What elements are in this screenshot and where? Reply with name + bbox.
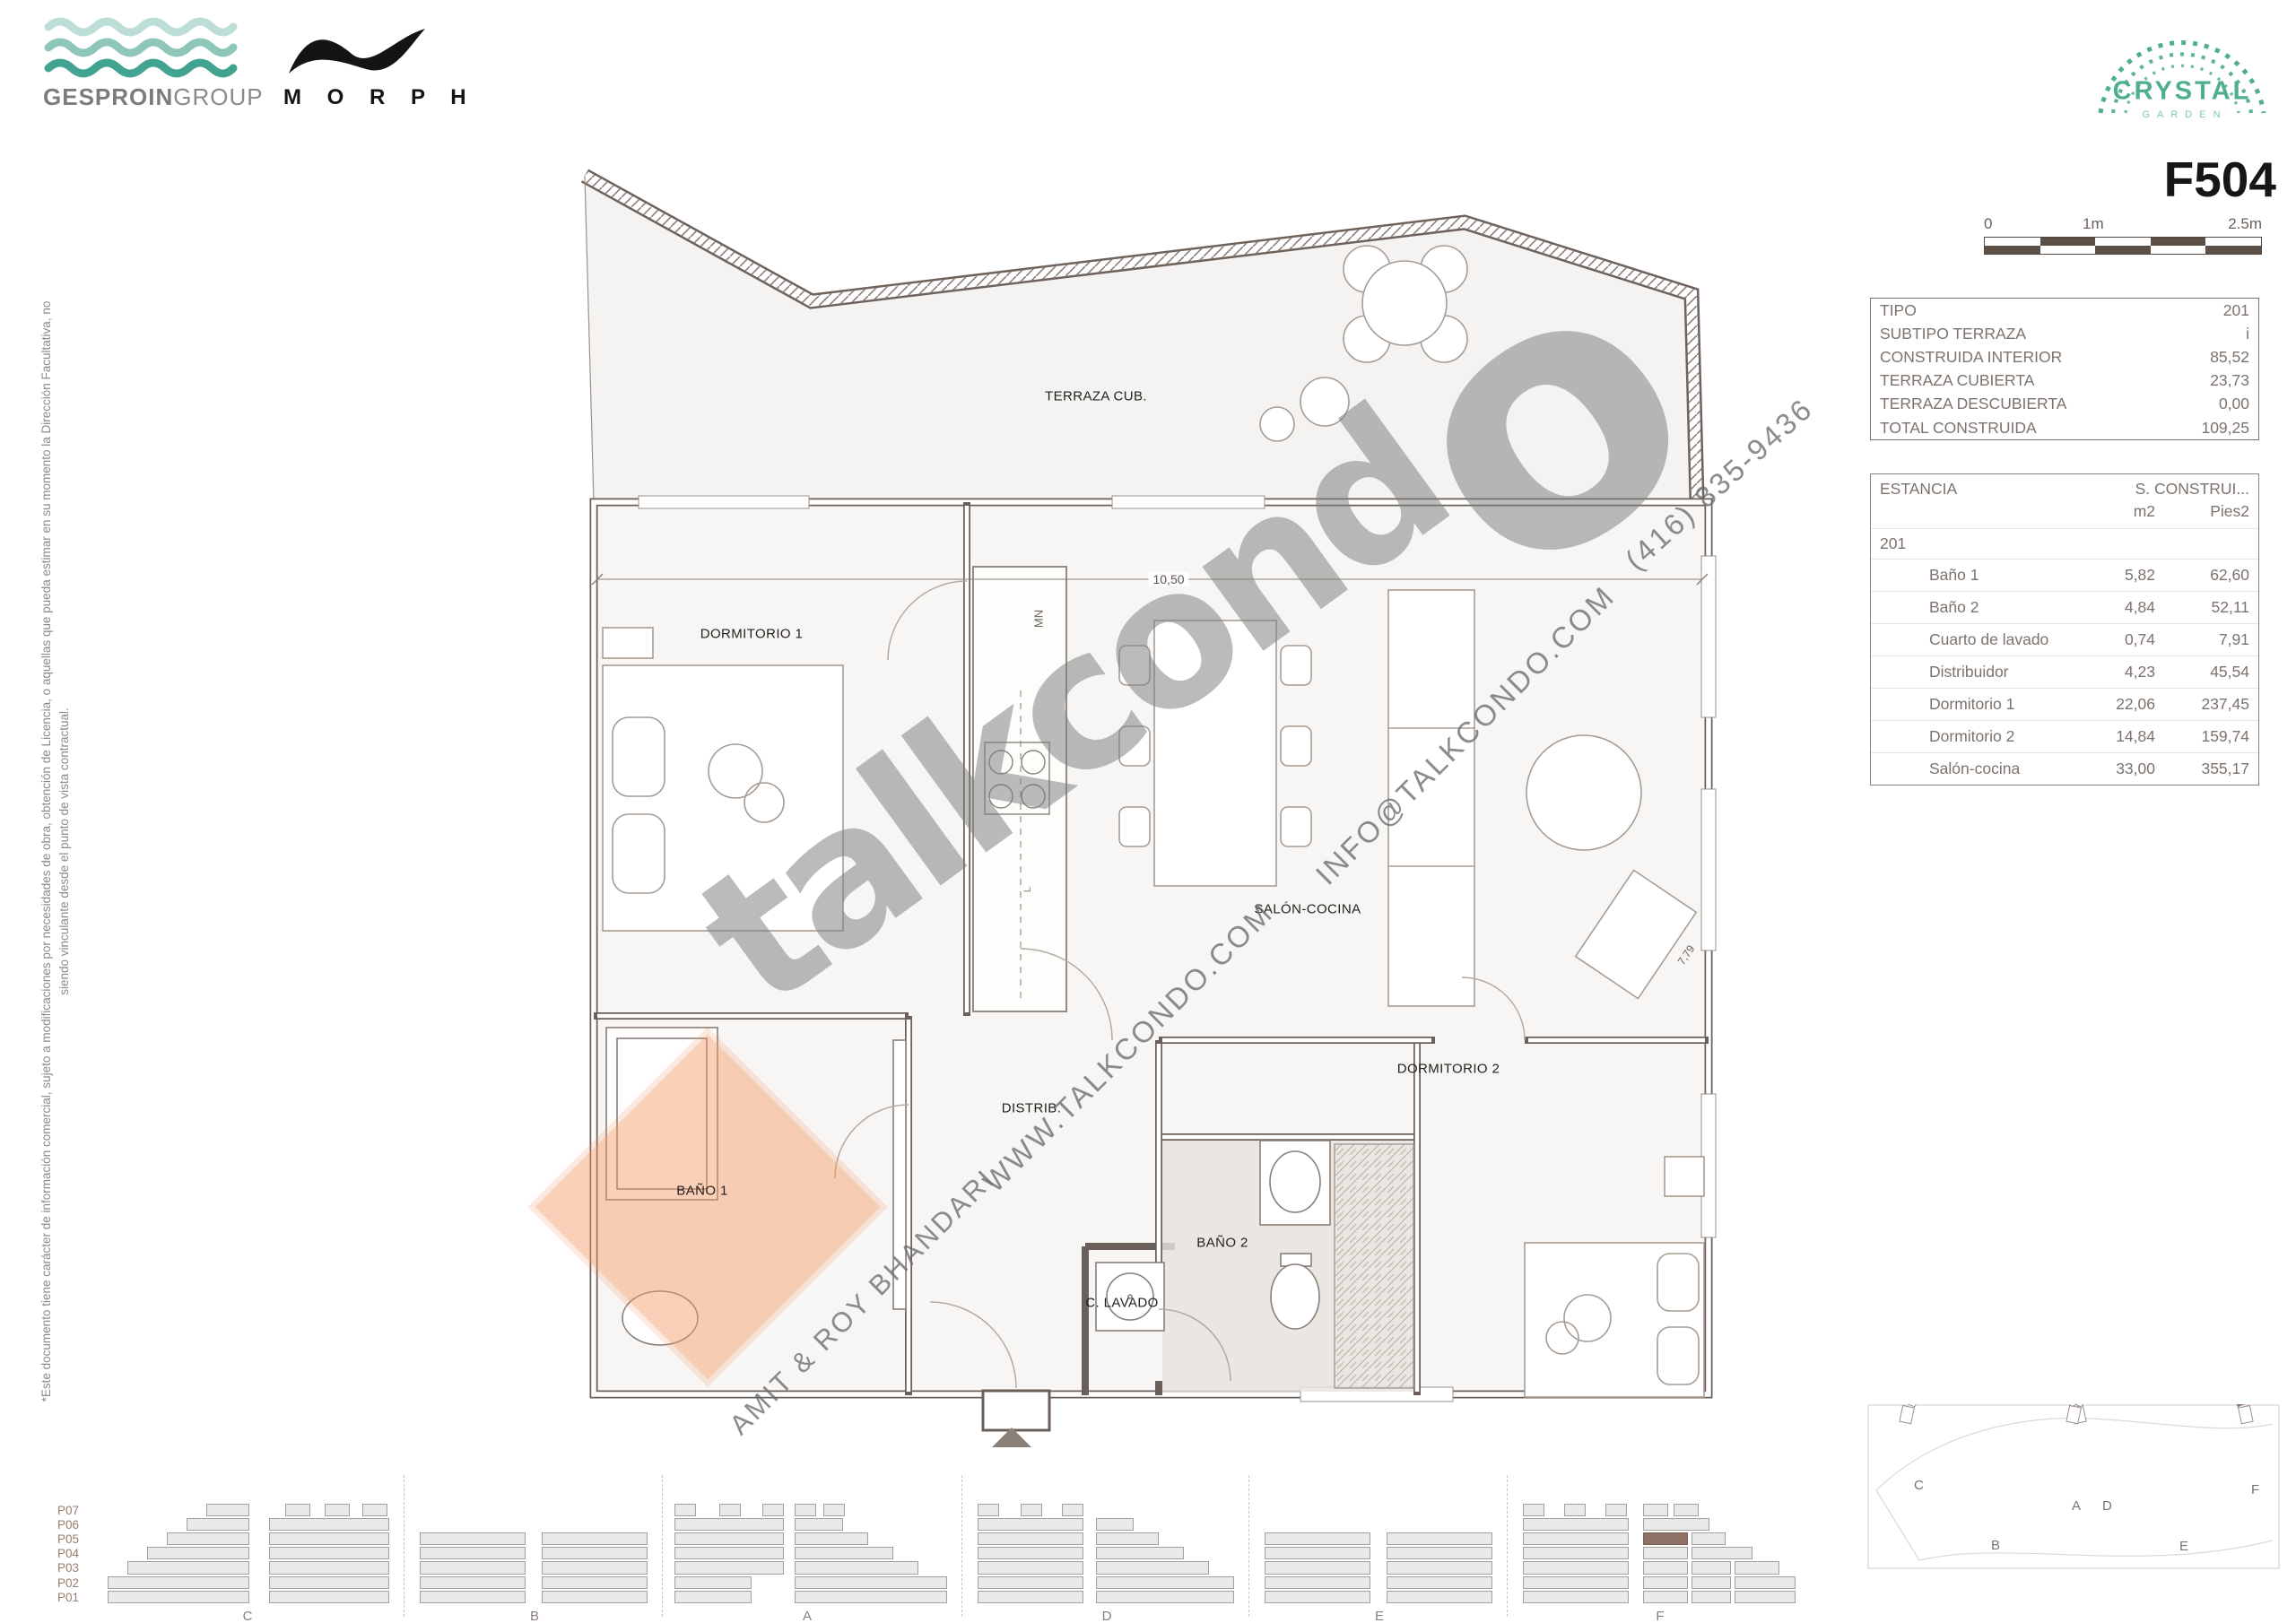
floor-level-label: P03: [57, 1561, 79, 1575]
elevation-unit: [795, 1576, 947, 1589]
elevation-unit: [269, 1591, 389, 1603]
room-area-row: Cuarto de lavado0,747,91: [1871, 623, 2258, 655]
elevation-unit: [795, 1532, 868, 1545]
room-area-row: Distribuidor4,2345,54: [1871, 655, 2258, 688]
summary-row: TERRAZA CUBIERTA23,73: [1871, 369, 2258, 393]
elevation-unit: [674, 1591, 752, 1603]
floor-level-label: P06: [57, 1518, 79, 1532]
elevation-unit-highlighted: [1643, 1532, 1688, 1545]
elevation-unit: [542, 1561, 648, 1574]
elevation-unit: [1387, 1532, 1492, 1545]
elevation-unit: [674, 1561, 784, 1574]
room-area-row: Dormitorio 214,84159,74: [1871, 720, 2258, 752]
elevation-section-label: B: [530, 1609, 539, 1623]
unit-m2: m2: [2070, 502, 2155, 521]
elevation-unit: [1605, 1504, 1627, 1516]
elevation-unit: [1735, 1591, 1796, 1603]
elevation-unit: [1265, 1576, 1370, 1589]
col-estancia: ESTANCIA: [1880, 480, 1957, 499]
elevation-unit: [1265, 1561, 1370, 1574]
floor-level-label: P05: [57, 1532, 79, 1546]
gesproin-wordmark: GESPROINGROUP: [43, 83, 264, 111]
scale-segment: [1985, 238, 2040, 246]
col-construida: S. CONSTRUI...: [2135, 480, 2249, 499]
elevation-unit: [795, 1591, 947, 1603]
elevation-unit: [420, 1576, 526, 1589]
elevation-unit: [269, 1561, 389, 1574]
elevation-unit: [674, 1576, 752, 1589]
elevation-unit: [1062, 1504, 1083, 1516]
scale-bar-labels: 0 1m 2.5m: [1984, 215, 2262, 237]
site-section-label: A: [2072, 1498, 2081, 1514]
elevation-unit: [1674, 1504, 1699, 1516]
elevation-unit: [1523, 1561, 1629, 1574]
gesproin-logo: GESPROINGROUP: [43, 14, 264, 111]
room-areas-table: ESTANCIA S. CONSTRUI... m2 Pies2 201 Bañ…: [1870, 473, 2259, 785]
scale-tick-1m: 1m: [2083, 215, 2104, 233]
gesproin-waves-icon: [43, 14, 239, 79]
summary-row: TOTAL CONSTRUIDA109,25: [1871, 416, 2258, 439]
label-salon-cocina: SALÓN-COCINA: [1255, 902, 1361, 917]
elevation-unit: [1265, 1547, 1370, 1559]
elevation-unit: [1523, 1504, 1544, 1516]
elevation-unit: [978, 1518, 1083, 1531]
elevation-unit: [1643, 1561, 1688, 1574]
elevation-unit: [1021, 1504, 1042, 1516]
morph-wave-icon: [283, 20, 436, 81]
floor-level-label: P07: [57, 1504, 79, 1517]
site-section-label: C: [1914, 1478, 1924, 1493]
wardrobe: [1335, 1144, 1413, 1388]
elevation-unit: [1096, 1518, 1134, 1531]
elevation-unit: [167, 1532, 249, 1545]
elevation-unit: [1096, 1532, 1159, 1545]
elevation-unit: [978, 1547, 1083, 1559]
elevation-unit: [1643, 1547, 1688, 1559]
dim-l: L: [1022, 887, 1033, 892]
elevation-unit: [674, 1547, 784, 1559]
elevation-unit: [795, 1504, 816, 1516]
section-divider: [1507, 1475, 1508, 1617]
elevation-unit: [674, 1504, 696, 1516]
elevation-unit: [1643, 1591, 1688, 1603]
elevation-unit: [674, 1532, 784, 1545]
scale-segment: [2205, 246, 2261, 254]
scale-tick-0: 0: [1984, 215, 1992, 233]
elevation-unit: [823, 1504, 845, 1516]
site-section-label: D: [2102, 1498, 2112, 1514]
room-areas-header: ESTANCIA S. CONSTRUI...: [1871, 474, 2258, 500]
summary-row: TIPO201: [1871, 299, 2258, 322]
label-distribuidor: DISTRIB.: [1002, 1101, 1062, 1116]
garden-wordmark: GARDEN: [2142, 109, 2227, 120]
section-divider: [662, 1475, 663, 1617]
elevation-unit: [420, 1547, 526, 1559]
elevation-unit: [978, 1576, 1083, 1589]
elevation-unit: [1387, 1591, 1492, 1603]
scale-segment: [2151, 238, 2206, 246]
floorplan-page: GESPROINGROUP M O R P H CRYSTAL GARDEN F…: [0, 0, 2296, 1623]
label-bano-2: BAÑO 2: [1196, 1236, 1248, 1251]
elevation-unit: [269, 1576, 389, 1589]
elevation-unit: [420, 1532, 526, 1545]
elevation-section-label: C: [243, 1609, 253, 1623]
site-section-label: E: [2179, 1539, 2188, 1554]
elevation-unit: [127, 1561, 249, 1574]
elevation-unit: [108, 1576, 249, 1589]
room-area-row: Salón-cocina33,00355,17: [1871, 752, 2258, 785]
elevation-unit: [1692, 1576, 1731, 1589]
elevation-unit: [420, 1591, 526, 1603]
elevation-unit: [795, 1547, 893, 1559]
floor-level-label: P04: [57, 1547, 79, 1560]
elevation-unit: [1523, 1518, 1629, 1531]
label-c-lavado: C. LAVADO: [1085, 1296, 1158, 1311]
room-area-row: Baño 15,8262,60: [1871, 559, 2258, 591]
elevation-unit: [542, 1576, 648, 1589]
elevation-section-label: D: [1102, 1609, 1112, 1623]
label-dormitorio-1: DORMITORIO 1: [700, 627, 804, 642]
elevation-unit: [1692, 1561, 1731, 1574]
site-section-label: B: [1991, 1538, 2000, 1553]
elevation-unit: [1265, 1532, 1370, 1545]
elevation-unit: [1387, 1547, 1492, 1559]
label-dormitorio-2: DORMITORIO 2: [1397, 1062, 1500, 1077]
elevation-unit: [325, 1504, 350, 1516]
elevation-unit: [719, 1504, 741, 1516]
scale-bar: 0 1m 2.5m: [1984, 215, 2262, 255]
elevation-unit: [420, 1561, 526, 1574]
elevation-unit: [206, 1504, 249, 1516]
label-terraza: TERRAZA CUB.: [1045, 389, 1147, 404]
unit-summary-table: TIPO201SUBTIPO TERRAZAiCONSTRUIDA INTERI…: [1870, 298, 2259, 440]
elevation-section-label: E: [1375, 1609, 1384, 1623]
elevation-unit: [1387, 1561, 1492, 1574]
elevation-unit: [1735, 1576, 1796, 1589]
summary-row: CONSTRUIDA INTERIOR85,52: [1871, 345, 2258, 369]
elevation-unit: [269, 1518, 389, 1531]
site-key-plan: CBADEF: [1867, 1404, 2280, 1569]
summary-row: TERRAZA DESCUBIERTA0,00: [1871, 393, 2258, 416]
elevation-unit: [187, 1518, 249, 1531]
floor-level-label: P01: [57, 1591, 79, 1604]
elevation-unit: [542, 1591, 648, 1603]
site-section-label: F: [2251, 1482, 2259, 1497]
crystal-wordmark: CRYSTAL: [2113, 77, 2252, 107]
dim-10-50: 10,50: [1148, 572, 1188, 586]
legal-disclaimer: *Este documento tiene carácter de inform…: [38, 204, 74, 1499]
elevation-unit: [1096, 1547, 1184, 1559]
elevation-unit: [978, 1561, 1083, 1574]
terrace-floor: [585, 176, 1697, 502]
elevation-unit: [674, 1518, 784, 1531]
scale-segment: [2040, 238, 2096, 246]
elevation-unit: [978, 1504, 999, 1516]
disclaimer-line-1: *Este documento tiene carácter de inform…: [38, 204, 56, 1499]
morph-logo: M O R P H: [283, 20, 476, 110]
elevation-section-label: A: [803, 1609, 812, 1623]
elevation-unit: [762, 1504, 784, 1516]
elevation-unit: [269, 1547, 389, 1559]
scale-segment: [2151, 246, 2206, 254]
entry-door: [983, 1391, 1049, 1430]
elevation-unit: [1692, 1532, 1726, 1545]
scale-segment: [2095, 246, 2151, 254]
elevation-unit: [285, 1504, 310, 1516]
bed-dorm1: [603, 628, 843, 931]
elevation-unit: [1523, 1532, 1629, 1545]
morph-wordmark: M O R P H: [283, 85, 476, 110]
kitchen: [973, 567, 1066, 1011]
scale-tick-2-5m: 2.5m: [2228, 215, 2262, 233]
elevation-unit: [1643, 1576, 1688, 1589]
elevation-unit: [542, 1532, 648, 1545]
label-bano-1: BAÑO 1: [676, 1184, 727, 1199]
unit-code: F504: [2164, 151, 2276, 208]
crystal-garden-logo: CRYSTAL GARDEN: [2086, 13, 2278, 127]
section-divider: [961, 1475, 962, 1617]
elevation-unit: [269, 1532, 389, 1545]
elevation-unit: [362, 1504, 387, 1516]
floor-level-label: P02: [57, 1576, 79, 1590]
elevation-unit: [1523, 1576, 1629, 1589]
room-areas-units: m2 Pies2: [1871, 500, 2258, 528]
elevation-unit: [1643, 1518, 1709, 1531]
elevation-unit: [795, 1518, 843, 1531]
elevation-unit: [1692, 1547, 1752, 1559]
elevation-unit: [978, 1532, 1083, 1545]
elevation-unit: [1387, 1576, 1492, 1589]
section-divider: [404, 1475, 404, 1617]
scale-segment: [2095, 238, 2151, 246]
scale-segment: [1985, 246, 2040, 254]
room-area-row: Baño 24,8452,11: [1871, 591, 2258, 623]
elevation-unit: [978, 1591, 1083, 1603]
scale-segment: [2040, 246, 2096, 254]
elevation-unit: [1096, 1591, 1234, 1603]
elevation-unit: [1265, 1591, 1370, 1603]
elevation-unit: [1564, 1504, 1586, 1516]
elevation-unit: [795, 1561, 918, 1574]
scale-bar-cells: [1984, 237, 2262, 255]
elevation-unit: [1523, 1547, 1629, 1559]
elevation-unit: [1643, 1504, 1668, 1516]
summary-row: SUBTIPO TERRAZAi: [1871, 322, 2258, 345]
elevation-unit: [1096, 1561, 1209, 1574]
scale-segment: [2205, 238, 2261, 246]
elevation-unit: [1692, 1591, 1731, 1603]
unit-pies2: Pies2: [2155, 502, 2249, 521]
section-divider: [1248, 1475, 1249, 1617]
room-area-row: Dormitorio 122,06237,45: [1871, 688, 2258, 720]
disclaimer-line-2: siendo vinculante desde el punto de vist…: [56, 204, 74, 1499]
elevation-unit: [1523, 1591, 1629, 1603]
dim-mn: MN: [1032, 610, 1046, 628]
elevation-unit: [542, 1547, 648, 1559]
elevation-unit: [108, 1591, 249, 1603]
elevation-unit: [1096, 1576, 1234, 1589]
elevation-section-label: F: [1656, 1609, 1664, 1623]
elevation-unit: [1735, 1561, 1779, 1574]
elevation-unit: [147, 1547, 249, 1559]
room-group-code: 201: [1871, 528, 2258, 559]
